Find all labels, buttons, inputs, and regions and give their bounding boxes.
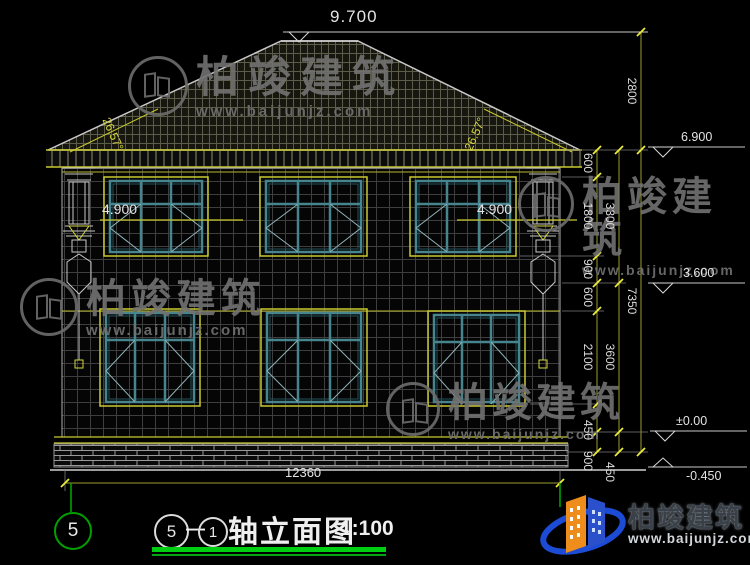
dim-label-3300: 3300 [604,203,616,230]
dim-label-600a: 600 [582,153,594,173]
watermark-logo-icon [518,176,574,232]
title-axis-from-bubble: 5 [154,514,189,549]
title-underline-thick [152,547,386,552]
brand-name: 柏竣建筑 [628,496,744,535]
watermark-url: www.baijunjz.com [582,262,750,278]
dim-label-450a: 450 [582,420,594,440]
title-underline-thin [152,554,386,556]
watermark-left: 柏竣建筑 www.baijunjz.com [20,278,266,339]
cad-elevation-drawing: 柏竣建筑 www.baijunjz.com 柏竣建筑 www.baijunjz.… [0,0,750,565]
sill-label-left: 4.900 [102,202,137,216]
watermark-roof: 柏竣建筑 www.baijunjz.com [128,56,404,120]
watermark-url: www.baijunjz.com [86,322,266,339]
watermark-logo-icon [386,382,440,436]
eave-band [46,150,582,168]
dim-label-3600: 3600 [604,344,616,371]
watermark-logo-icon [128,56,188,116]
elevation-label-ground: ±0.00 [676,415,707,428]
dim-label-1800: 1800 [582,203,594,230]
elevation-label-below: -0.450 [686,470,721,483]
dim-label-600b: 600 [582,287,594,307]
dim-label-900a: 900 [582,259,594,279]
dim-label-total-height: 7350 [626,288,638,315]
watermark-name: 柏竣建筑 [86,278,266,320]
elevation-label-ridge: 9.700 [330,8,378,25]
watermark-right: 柏竣建筑 www.baijunjz.com [518,176,750,278]
sill-label-right: 4.900 [477,202,512,216]
dim-label-total-width: 12360 [285,466,321,479]
axis-bubble-5: 5 [54,512,92,550]
drawing-title: 轴立面图 [228,507,356,551]
dim-label-2100: 2100 [582,344,594,371]
dim-label-450b: 450 [604,462,616,482]
watermark-logo-icon [20,278,78,336]
elevation-label-eave: 6.900 [681,131,712,144]
watermark-url: www.baijunjz.com [196,103,404,120]
dim-label-roof-height: 2800 [626,78,638,105]
drawing-scale: 1:100 [340,517,394,541]
watermark-url: www.baijunjz.com [448,426,624,442]
brand-url: www.baijunjz.com [628,531,750,546]
watermark-name: 柏竣建筑 [448,382,624,424]
brand-logo-icon [539,495,628,560]
elevation-label-floor2: 3.600 [683,267,714,280]
watermark-name: 柏竣建筑 [196,56,404,101]
dim-label-900b: 900 [582,451,594,471]
title-axis-to-bubble: 1 [198,517,228,547]
